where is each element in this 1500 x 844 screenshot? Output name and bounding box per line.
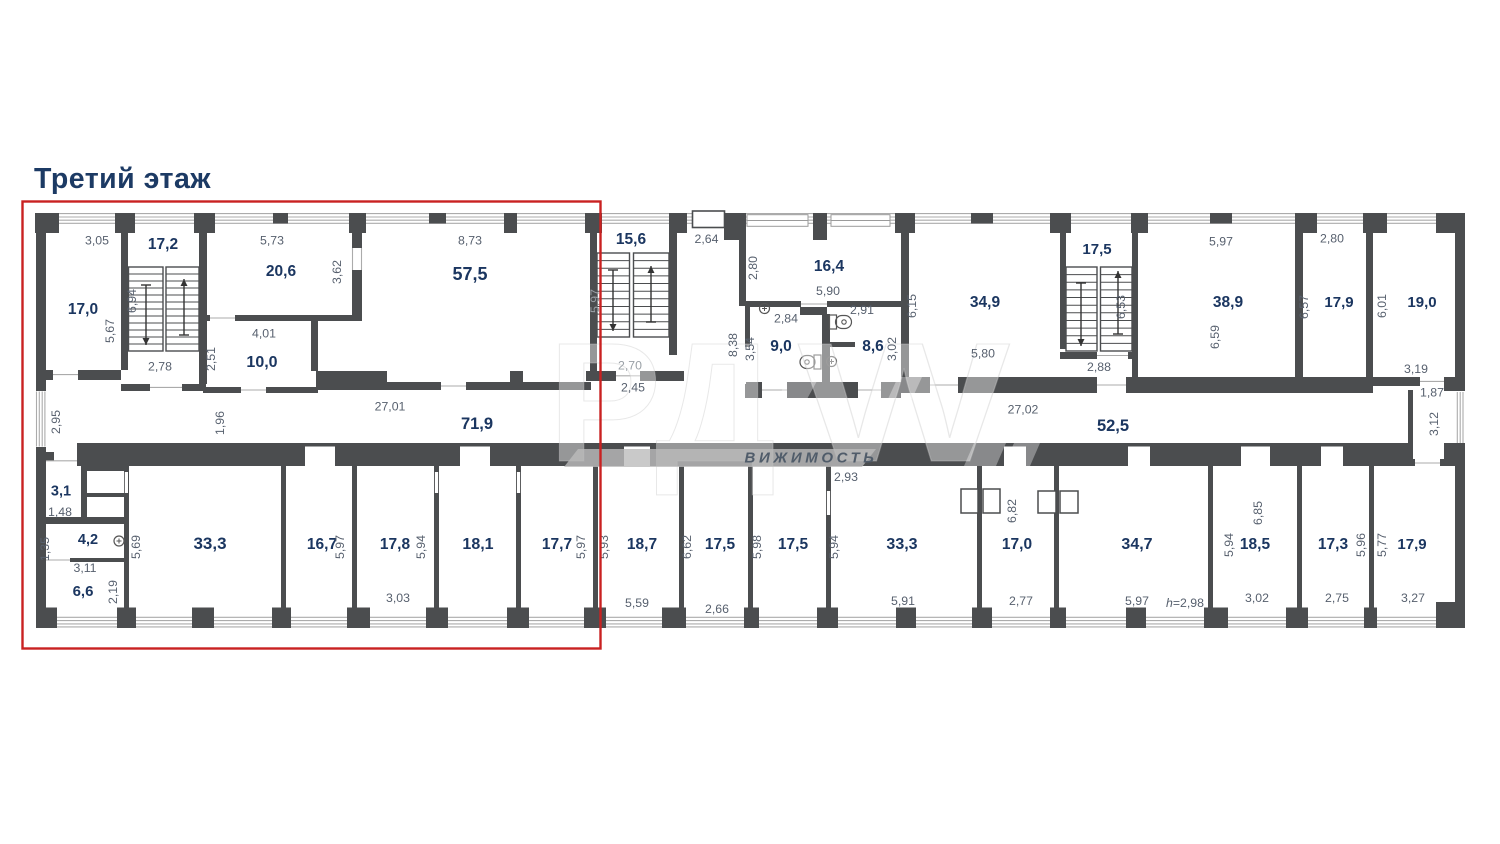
svg-text:10,0: 10,0 <box>246 354 277 371</box>
svg-text:6,57: 6,57 <box>1297 295 1311 319</box>
svg-text:71,9: 71,9 <box>461 415 493 433</box>
svg-text:6,62: 6,62 <box>680 535 694 559</box>
svg-text:33,3: 33,3 <box>193 534 226 553</box>
svg-text:17,5: 17,5 <box>705 536 736 553</box>
svg-text:5,97: 5,97 <box>1125 594 1149 608</box>
svg-text:5,77: 5,77 <box>1375 533 1389 557</box>
svg-text:52,5: 52,5 <box>1097 417 1129 435</box>
svg-text:3,27: 3,27 <box>1401 591 1425 605</box>
svg-text:34,7: 34,7 <box>1121 536 1152 553</box>
svg-text:Д: Д <box>655 308 776 498</box>
svg-text:57,5: 57,5 <box>452 264 487 284</box>
svg-text:34,9: 34,9 <box>970 294 1001 311</box>
svg-text:2,88: 2,88 <box>1087 360 1111 374</box>
svg-text:Третий этаж: Третий этаж <box>34 163 211 195</box>
svg-text:2,91: 2,91 <box>850 303 874 317</box>
svg-text:17,5: 17,5 <box>1082 241 1111 258</box>
svg-text:5,97: 5,97 <box>574 535 588 559</box>
svg-text:27,01: 27,01 <box>375 400 406 414</box>
svg-text:3,02: 3,02 <box>885 337 899 361</box>
svg-text:15,6: 15,6 <box>616 231 647 248</box>
svg-text:4,2: 4,2 <box>78 532 98 548</box>
svg-text:3,11: 3,11 <box>73 561 96 575</box>
svg-text:38,9: 38,9 <box>1213 294 1244 311</box>
svg-text:6,85: 6,85 <box>1251 501 1265 525</box>
svg-text:17,9: 17,9 <box>1397 536 1426 553</box>
svg-text:2,51: 2,51 <box>204 347 218 371</box>
svg-text:5,94: 5,94 <box>1222 533 1236 557</box>
svg-text:17,8: 17,8 <box>380 536 411 553</box>
svg-text:6,59: 6,59 <box>1208 325 1222 349</box>
svg-text:6,53: 6,53 <box>1114 295 1128 319</box>
svg-text:20,6: 20,6 <box>266 263 297 280</box>
svg-text:9,0: 9,0 <box>770 338 792 355</box>
svg-text:6,82: 6,82 <box>1005 499 1019 523</box>
svg-text:2,78: 2,78 <box>148 360 172 374</box>
svg-text:2,80: 2,80 <box>746 256 760 280</box>
svg-text:17,9: 17,9 <box>1324 294 1353 311</box>
svg-text:3,19: 3,19 <box>1404 362 1428 376</box>
svg-text:2,75: 2,75 <box>1325 591 1349 605</box>
svg-text:18,5: 18,5 <box>1240 536 1271 553</box>
svg-text:1,48: 1,48 <box>48 505 72 519</box>
svg-text:18,1: 18,1 <box>462 536 493 553</box>
svg-text:17,3: 17,3 <box>1318 536 1349 553</box>
svg-text:Р: Р <box>548 308 661 498</box>
svg-text:5,94: 5,94 <box>414 535 428 559</box>
svg-text:6,15: 6,15 <box>905 294 919 318</box>
svg-text:3,03: 3,03 <box>386 591 410 605</box>
svg-text:3,54: 3,54 <box>743 337 757 361</box>
svg-text:5,67: 5,67 <box>103 319 117 343</box>
svg-text:8,38: 8,38 <box>726 333 740 357</box>
svg-text:6,94: 6,94 <box>125 289 139 313</box>
svg-text:8,73: 8,73 <box>458 234 482 248</box>
svg-text:17,0: 17,0 <box>1002 536 1032 553</box>
svg-text:5,94: 5,94 <box>827 535 841 559</box>
svg-text:1,35: 1,35 <box>38 537 52 561</box>
svg-text:8,6: 8,6 <box>862 338 884 355</box>
svg-text:5,97: 5,97 <box>333 535 347 559</box>
svg-text:17,2: 17,2 <box>148 236 178 253</box>
svg-text:W: W <box>798 308 1010 498</box>
svg-text:16,4: 16,4 <box>814 258 845 275</box>
svg-text:2,84: 2,84 <box>774 312 798 326</box>
svg-text:6,01: 6,01 <box>1375 294 1389 318</box>
svg-text:5,93: 5,93 <box>597 535 611 559</box>
svg-text:2,64: 2,64 <box>695 232 719 246</box>
svg-text:5,69: 5,69 <box>129 535 143 559</box>
svg-text:17,5: 17,5 <box>778 536 809 553</box>
svg-text:1,87: 1,87 <box>1420 386 1444 400</box>
svg-text:27,02: 27,02 <box>1008 403 1039 417</box>
svg-text:3,05: 3,05 <box>85 234 109 248</box>
svg-text:2,80: 2,80 <box>1320 232 1344 246</box>
svg-text:6,6: 6,6 <box>73 583 94 600</box>
svg-text:3,1: 3,1 <box>51 484 71 500</box>
svg-text:5,59: 5,59 <box>625 596 649 610</box>
svg-text:1,96: 1,96 <box>213 411 227 435</box>
svg-text:4,01: 4,01 <box>252 327 276 341</box>
svg-text:5,98: 5,98 <box>750 535 764 559</box>
svg-text:h=2,98: h=2,98 <box>1166 596 1204 610</box>
svg-text:2,66: 2,66 <box>705 602 729 616</box>
svg-text:5,80: 5,80 <box>971 347 995 361</box>
svg-text:3,02: 3,02 <box>1245 591 1269 605</box>
svg-text:ВИЖИМОСТЬ: ВИЖИМОСТЬ <box>745 450 878 467</box>
svg-text:17,7: 17,7 <box>542 536 572 553</box>
svg-text:2,19: 2,19 <box>106 580 120 604</box>
svg-text:3,62: 3,62 <box>330 260 344 284</box>
svg-text:2,95: 2,95 <box>49 410 63 434</box>
svg-text:5,90: 5,90 <box>816 284 840 298</box>
svg-text:2,70: 2,70 <box>618 359 642 373</box>
svg-text:5,97: 5,97 <box>1209 235 1233 249</box>
svg-text:33,3: 33,3 <box>886 536 917 553</box>
svg-text:2,93: 2,93 <box>834 470 858 484</box>
svg-text:17,0: 17,0 <box>68 301 98 318</box>
svg-text:3,12: 3,12 <box>1427 412 1441 436</box>
svg-text:5,96: 5,96 <box>1354 533 1368 557</box>
svg-text:2,45: 2,45 <box>621 381 645 395</box>
svg-text:18,7: 18,7 <box>627 536 657 553</box>
svg-text:19,0: 19,0 <box>1407 294 1436 311</box>
svg-text:5,91: 5,91 <box>891 594 915 608</box>
svg-text:5,73: 5,73 <box>260 234 284 248</box>
svg-text:2,77: 2,77 <box>1009 594 1033 608</box>
